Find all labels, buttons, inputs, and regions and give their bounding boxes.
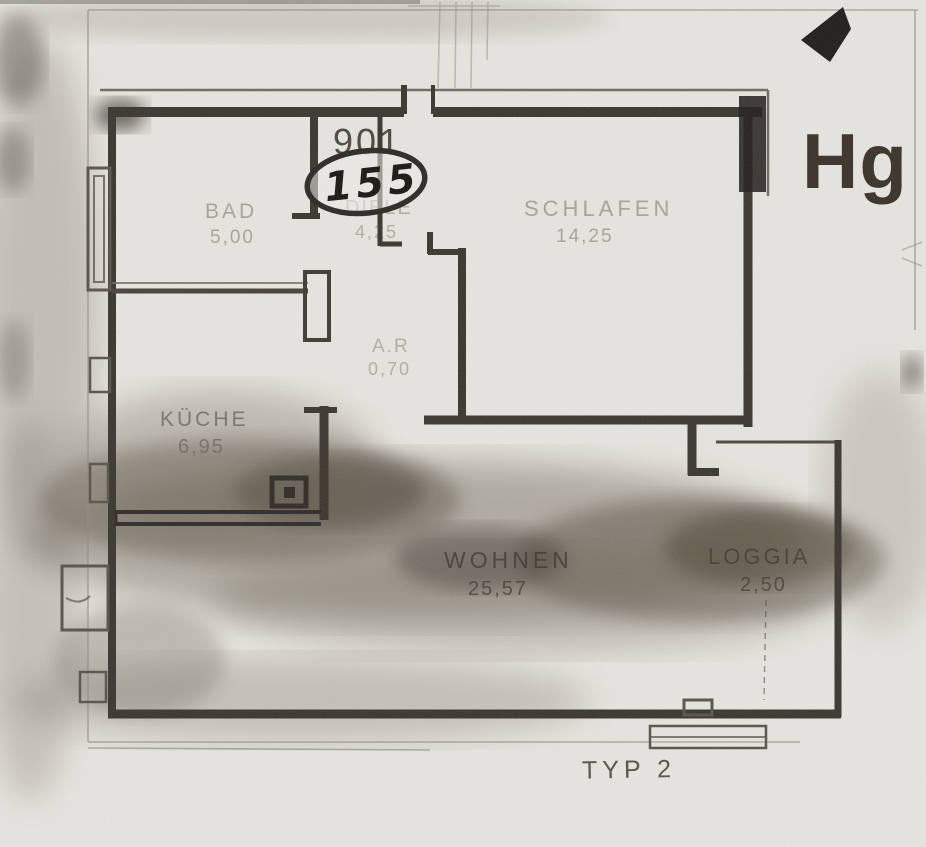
scan-grain-overlay: [0, 0, 926, 847]
scanned-floor-plan-page: BAD 5,00 DIELE 4,25 SCHLAFEN 14,25 A.R 0…: [0, 0, 926, 847]
floor-plan-drawing: BAD 5,00 DIELE 4,25 SCHLAFEN 14,25 A.R 0…: [0, 0, 926, 847]
